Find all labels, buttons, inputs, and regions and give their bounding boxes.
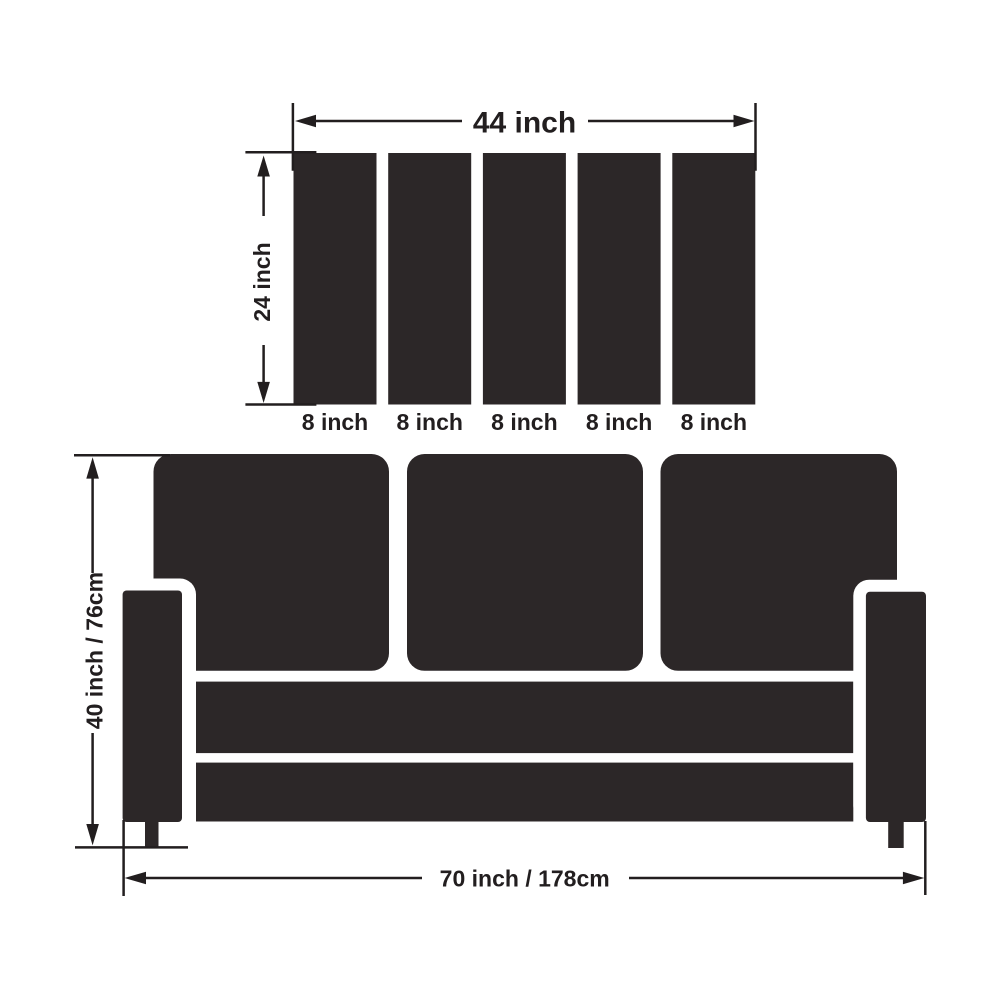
svg-text:8 inch: 8 inch [491, 409, 557, 435]
svg-text:44 inch: 44 inch [473, 107, 576, 140]
svg-text:8 inch: 8 inch [396, 409, 462, 435]
svg-text:70 inch / 178cm: 70 inch / 178cm [440, 866, 610, 892]
svg-text:40 inch / 76cm: 40 inch / 76cm [82, 572, 108, 729]
svg-text:8 inch: 8 inch [586, 409, 652, 435]
svg-text:24 inch: 24 inch [249, 242, 275, 321]
svg-text:8 inch: 8 inch [681, 409, 747, 435]
svg-text:8 inch: 8 inch [302, 409, 368, 435]
